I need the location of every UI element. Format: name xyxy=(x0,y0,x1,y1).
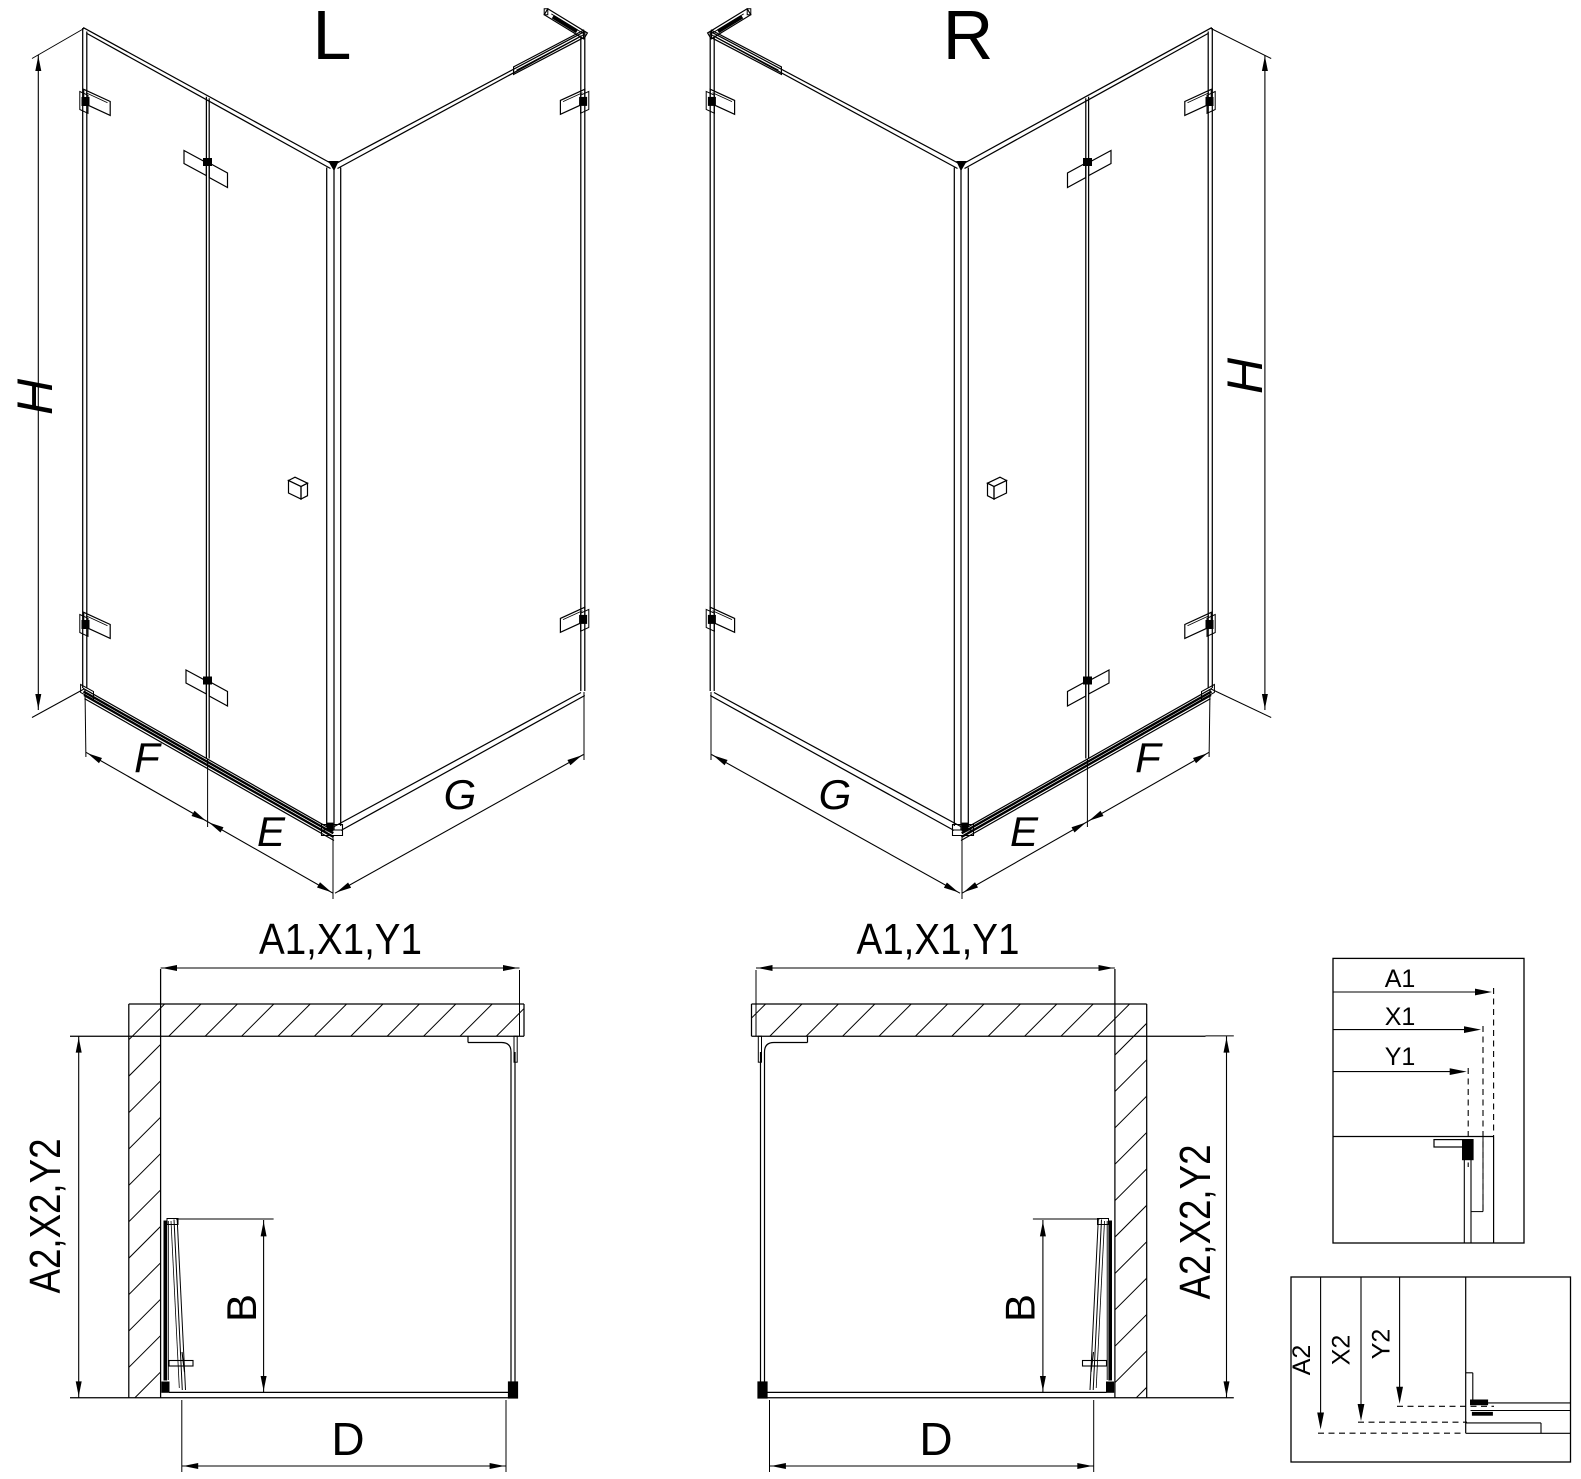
svg-text:F: F xyxy=(134,734,162,781)
svg-text:D: D xyxy=(919,1413,952,1465)
svg-text:A1: A1 xyxy=(1385,965,1416,993)
svg-text:H: H xyxy=(7,378,63,415)
svg-text:L: L xyxy=(313,0,352,74)
svg-text:H: H xyxy=(1217,357,1273,394)
svg-text:E: E xyxy=(1010,808,1039,855)
svg-text:A2: A2 xyxy=(1288,1345,1316,1376)
svg-text:A2,X2,Y2: A2,X2,Y2 xyxy=(21,1139,70,1294)
svg-text:X1: X1 xyxy=(1385,1003,1416,1031)
svg-text:B: B xyxy=(218,1294,265,1322)
svg-text:G: G xyxy=(819,771,852,818)
svg-text:A1,X1,Y1: A1,X1,Y1 xyxy=(857,915,1020,964)
svg-text:D: D xyxy=(331,1413,364,1465)
svg-text:E: E xyxy=(257,808,286,855)
svg-text:X2: X2 xyxy=(1328,1335,1356,1366)
svg-text:Y2: Y2 xyxy=(1368,1329,1396,1360)
svg-text:R: R xyxy=(943,0,994,74)
svg-text:A2,X2,Y2: A2,X2,Y2 xyxy=(1171,1145,1220,1300)
svg-text:F: F xyxy=(1135,734,1163,781)
svg-text:Y1: Y1 xyxy=(1385,1043,1416,1071)
svg-text:B: B xyxy=(996,1294,1043,1322)
svg-text:G: G xyxy=(444,771,477,818)
svg-text:A1,X1,Y1: A1,X1,Y1 xyxy=(259,915,422,964)
